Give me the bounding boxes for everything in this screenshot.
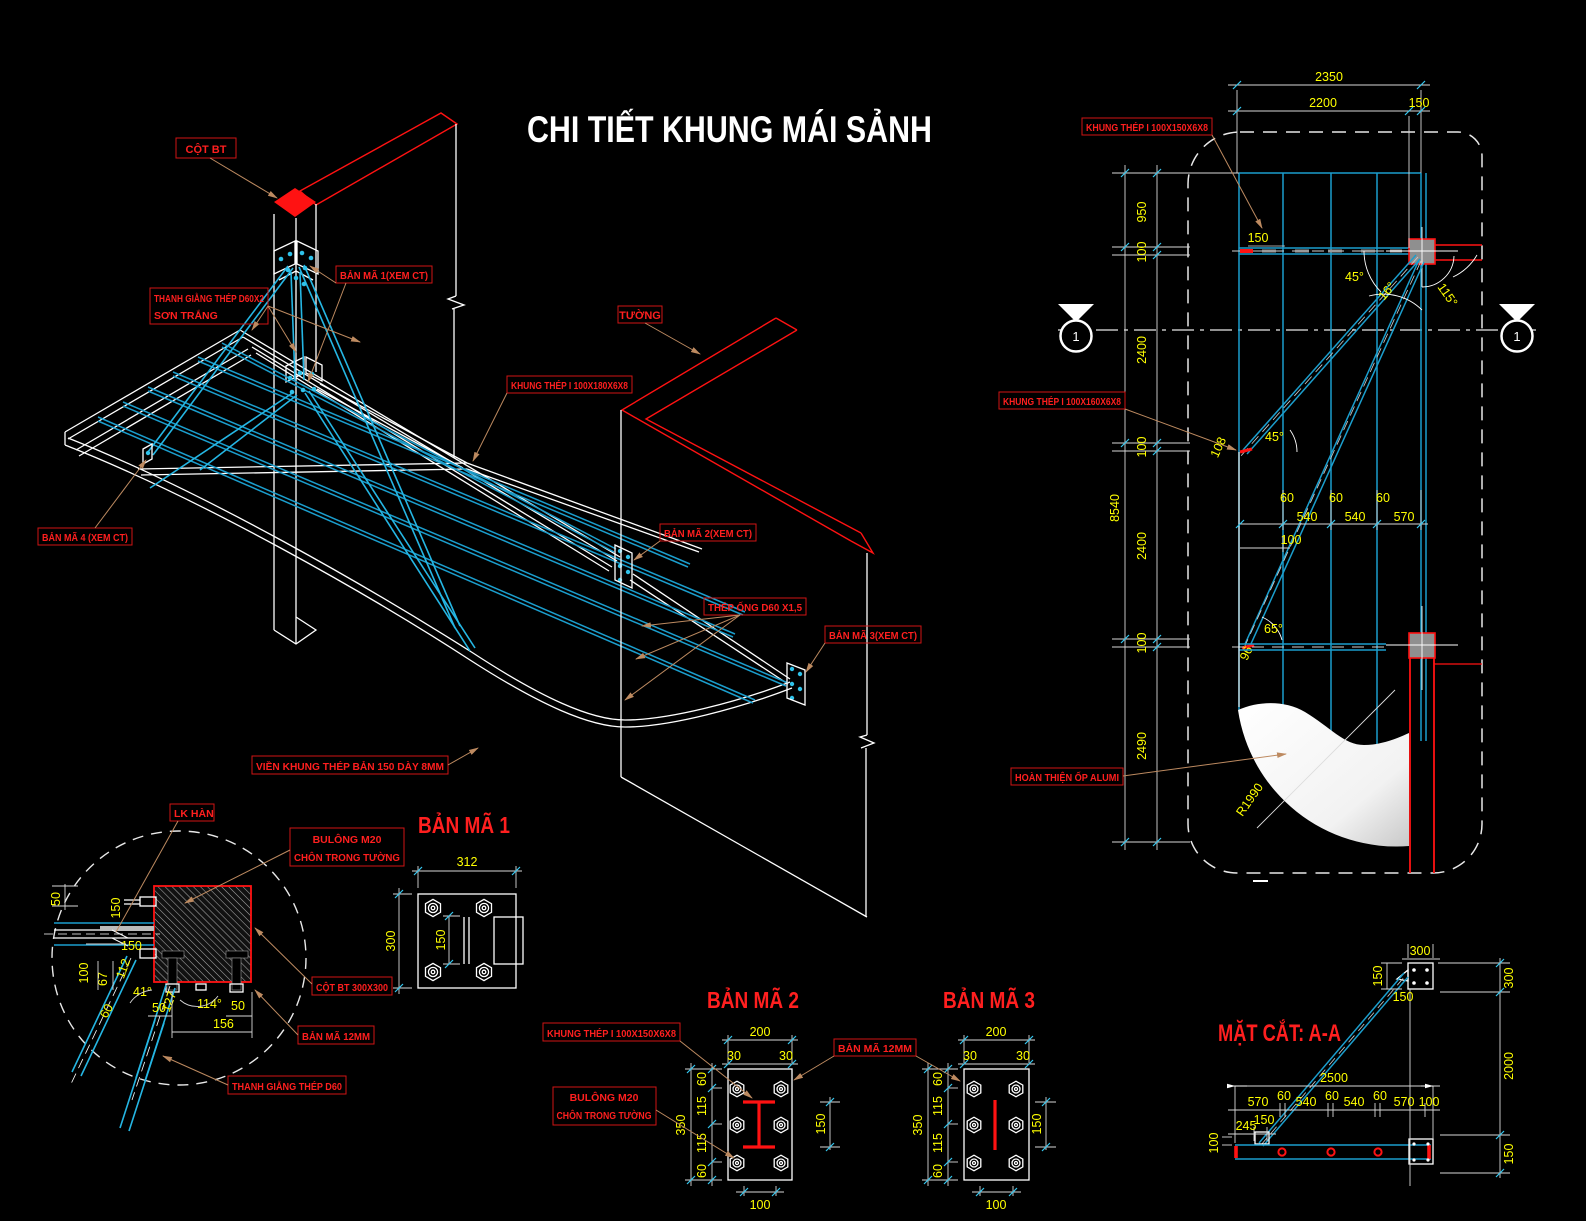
- svg-text:2350: 2350: [1315, 70, 1343, 84]
- svg-text:60: 60: [1277, 1089, 1291, 1103]
- svg-text:CỘT BT: CỘT BT: [186, 143, 227, 156]
- svg-text:100: 100: [1281, 533, 1302, 547]
- svg-text:300: 300: [1410, 944, 1431, 958]
- svg-text:30: 30: [963, 1049, 977, 1063]
- svg-text:45°: 45°: [1265, 430, 1284, 444]
- svg-text:VIỀN KHUNG THÉP BẢN 150 DÀY 8M: VIỀN KHUNG THÉP BẢN 150 DÀY 8MM: [256, 760, 444, 773]
- svg-text:BẢN MÃ 3: BẢN MÃ 3: [943, 985, 1035, 1013]
- svg-text:100: 100: [77, 963, 91, 984]
- svg-text:150: 150: [1393, 990, 1414, 1004]
- svg-text:HOÀN THIỆN ỐP ALUMI: HOÀN THIỆN ỐP ALUMI: [1015, 770, 1119, 784]
- svg-text:THÉP ỐNG D60 X1,5: THÉP ỐNG D60 X1,5: [708, 600, 802, 614]
- svg-text:540: 540: [1344, 1095, 1365, 1109]
- svg-text:BẢN MÃ 2(XEM CT): BẢN MÃ 2(XEM CT): [664, 527, 752, 540]
- svg-text:115: 115: [931, 1096, 945, 1116]
- svg-text:100: 100: [1135, 633, 1149, 654]
- svg-text:2400: 2400: [1135, 336, 1149, 364]
- svg-text:60: 60: [1376, 491, 1390, 505]
- svg-text:300: 300: [384, 931, 398, 952]
- svg-text:CHÔN TRONG TƯỜNG: CHÔN TRONG TƯỜNG: [294, 851, 400, 864]
- svg-text:60: 60: [1329, 491, 1343, 505]
- svg-text:60: 60: [1325, 1089, 1339, 1103]
- svg-text:BẢN MÃ 3(XEM CT): BẢN MÃ 3(XEM CT): [829, 629, 917, 642]
- svg-text:540: 540: [1297, 510, 1318, 524]
- svg-text:100: 100: [1207, 1133, 1221, 1154]
- svg-text:THANH GIẰNG THÉP D60X2: THANH GIẰNG THÉP D60X2: [154, 292, 264, 305]
- svg-text:CỘT BT 300X300: CỘT BT 300X300: [316, 981, 388, 994]
- svg-text:TƯỜNG: TƯỜNG: [619, 309, 661, 322]
- svg-text:1: 1: [1513, 329, 1520, 344]
- svg-text:2490: 2490: [1135, 732, 1149, 760]
- svg-text:312: 312: [457, 855, 478, 869]
- svg-text:THANH GIẰNG THÉP D60: THANH GIẰNG THÉP D60: [232, 1080, 342, 1093]
- svg-text:LK HÀN: LK HÀN: [174, 807, 214, 820]
- svg-text:150: 150: [109, 898, 123, 919]
- svg-text:150: 150: [1409, 96, 1430, 110]
- svg-text:60: 60: [695, 1164, 709, 1178]
- svg-text:115: 115: [931, 1133, 945, 1153]
- svg-text:BẢN MÃ 1(XEM CT): BẢN MÃ 1(XEM CT): [340, 269, 428, 282]
- svg-text:BẢN MÃ 4 (XEM CT): BẢN MÃ 4 (XEM CT): [42, 531, 128, 544]
- svg-text:60: 60: [695, 1072, 709, 1086]
- svg-text:150: 150: [1248, 231, 1269, 245]
- svg-text:570: 570: [1394, 510, 1415, 524]
- svg-text:50: 50: [49, 892, 63, 906]
- svg-text:SƠN TRẮNG: SƠN TRẮNG: [154, 309, 218, 322]
- svg-text:200: 200: [750, 1025, 771, 1039]
- svg-text:150: 150: [1371, 966, 1385, 987]
- svg-text:2500: 2500: [1320, 1071, 1348, 1085]
- svg-text:BULÔNG M20: BULÔNG M20: [313, 833, 382, 846]
- svg-text:115: 115: [695, 1096, 709, 1116]
- svg-text:540: 540: [1345, 510, 1366, 524]
- svg-text:60: 60: [931, 1072, 945, 1086]
- svg-text:BẢN MÃ 12MM: BẢN MÃ 12MM: [838, 1042, 912, 1055]
- svg-text:100: 100: [986, 1198, 1007, 1212]
- svg-text:2200: 2200: [1309, 96, 1337, 110]
- svg-text:KHUNG THÉP I 100X150X6X8: KHUNG THÉP I 100X150X6X8: [547, 1027, 676, 1040]
- svg-text:100: 100: [1135, 437, 1149, 458]
- svg-text:350: 350: [911, 1115, 925, 1136]
- svg-text:150: 150: [434, 930, 448, 951]
- svg-text:CHÔN TRONG TƯỜNG: CHÔN TRONG TƯỜNG: [557, 1109, 652, 1122]
- svg-text:156: 156: [213, 1017, 234, 1031]
- svg-text:BẢN MÃ 12MM: BẢN MÃ 12MM: [302, 1030, 370, 1043]
- svg-text:2400: 2400: [1135, 532, 1149, 560]
- svg-text:50: 50: [231, 999, 245, 1013]
- svg-text:30: 30: [779, 1049, 793, 1063]
- svg-text:150: 150: [1502, 1144, 1516, 1165]
- svg-text:8540: 8540: [1108, 494, 1122, 522]
- svg-text:2000: 2000: [1502, 1052, 1516, 1080]
- svg-text:KHUNG THÉP I 100X150X6X8: KHUNG THÉP I 100X150X6X8: [1086, 121, 1208, 134]
- svg-text:150: 150: [814, 1114, 828, 1135]
- svg-text:100: 100: [1419, 1095, 1440, 1109]
- svg-text:60: 60: [1280, 491, 1294, 505]
- svg-text:150: 150: [1030, 1114, 1044, 1135]
- svg-text:30: 30: [1016, 1049, 1030, 1063]
- svg-text:BẢN MÃ 1: BẢN MÃ 1: [418, 810, 510, 838]
- svg-text:1: 1: [1072, 329, 1079, 344]
- svg-text:100: 100: [750, 1198, 771, 1212]
- svg-text:KHUNG THÉP I 100X180X6X8: KHUNG THÉP I 100X180X6X8: [511, 379, 628, 392]
- svg-text:150: 150: [1254, 1113, 1275, 1127]
- svg-text:115: 115: [695, 1133, 709, 1153]
- svg-text:570: 570: [1248, 1095, 1269, 1109]
- svg-text:300: 300: [1502, 968, 1516, 989]
- svg-text:60: 60: [1373, 1089, 1387, 1103]
- svg-text:MẶT CẮT: A-A: MẶT CẮT: A-A: [1218, 1019, 1341, 1047]
- svg-text:KHUNG THÉP I 100X160X6X8: KHUNG THÉP I 100X160X6X8: [1003, 395, 1121, 408]
- svg-text:540: 540: [1296, 1095, 1317, 1109]
- svg-text:150: 150: [121, 939, 142, 953]
- svg-text:45°: 45°: [1345, 270, 1364, 284]
- svg-text:200: 200: [986, 1025, 1007, 1039]
- svg-text:100: 100: [1135, 242, 1149, 263]
- svg-text:570: 570: [1394, 1095, 1415, 1109]
- svg-text:60: 60: [931, 1164, 945, 1178]
- svg-text:30: 30: [727, 1049, 741, 1063]
- svg-text:BULÔNG M20: BULÔNG M20: [570, 1091, 639, 1104]
- svg-text:950: 950: [1135, 202, 1149, 223]
- svg-text:114°: 114°: [197, 997, 222, 1011]
- svg-text:65°: 65°: [1264, 622, 1283, 636]
- svg-text:BẢN MÃ 2: BẢN MÃ 2: [707, 985, 799, 1013]
- svg-text:CHI TIẾT KHUNG MÁI SẢNH: CHI TIẾT KHUNG MÁI SẢNH: [527, 109, 932, 150]
